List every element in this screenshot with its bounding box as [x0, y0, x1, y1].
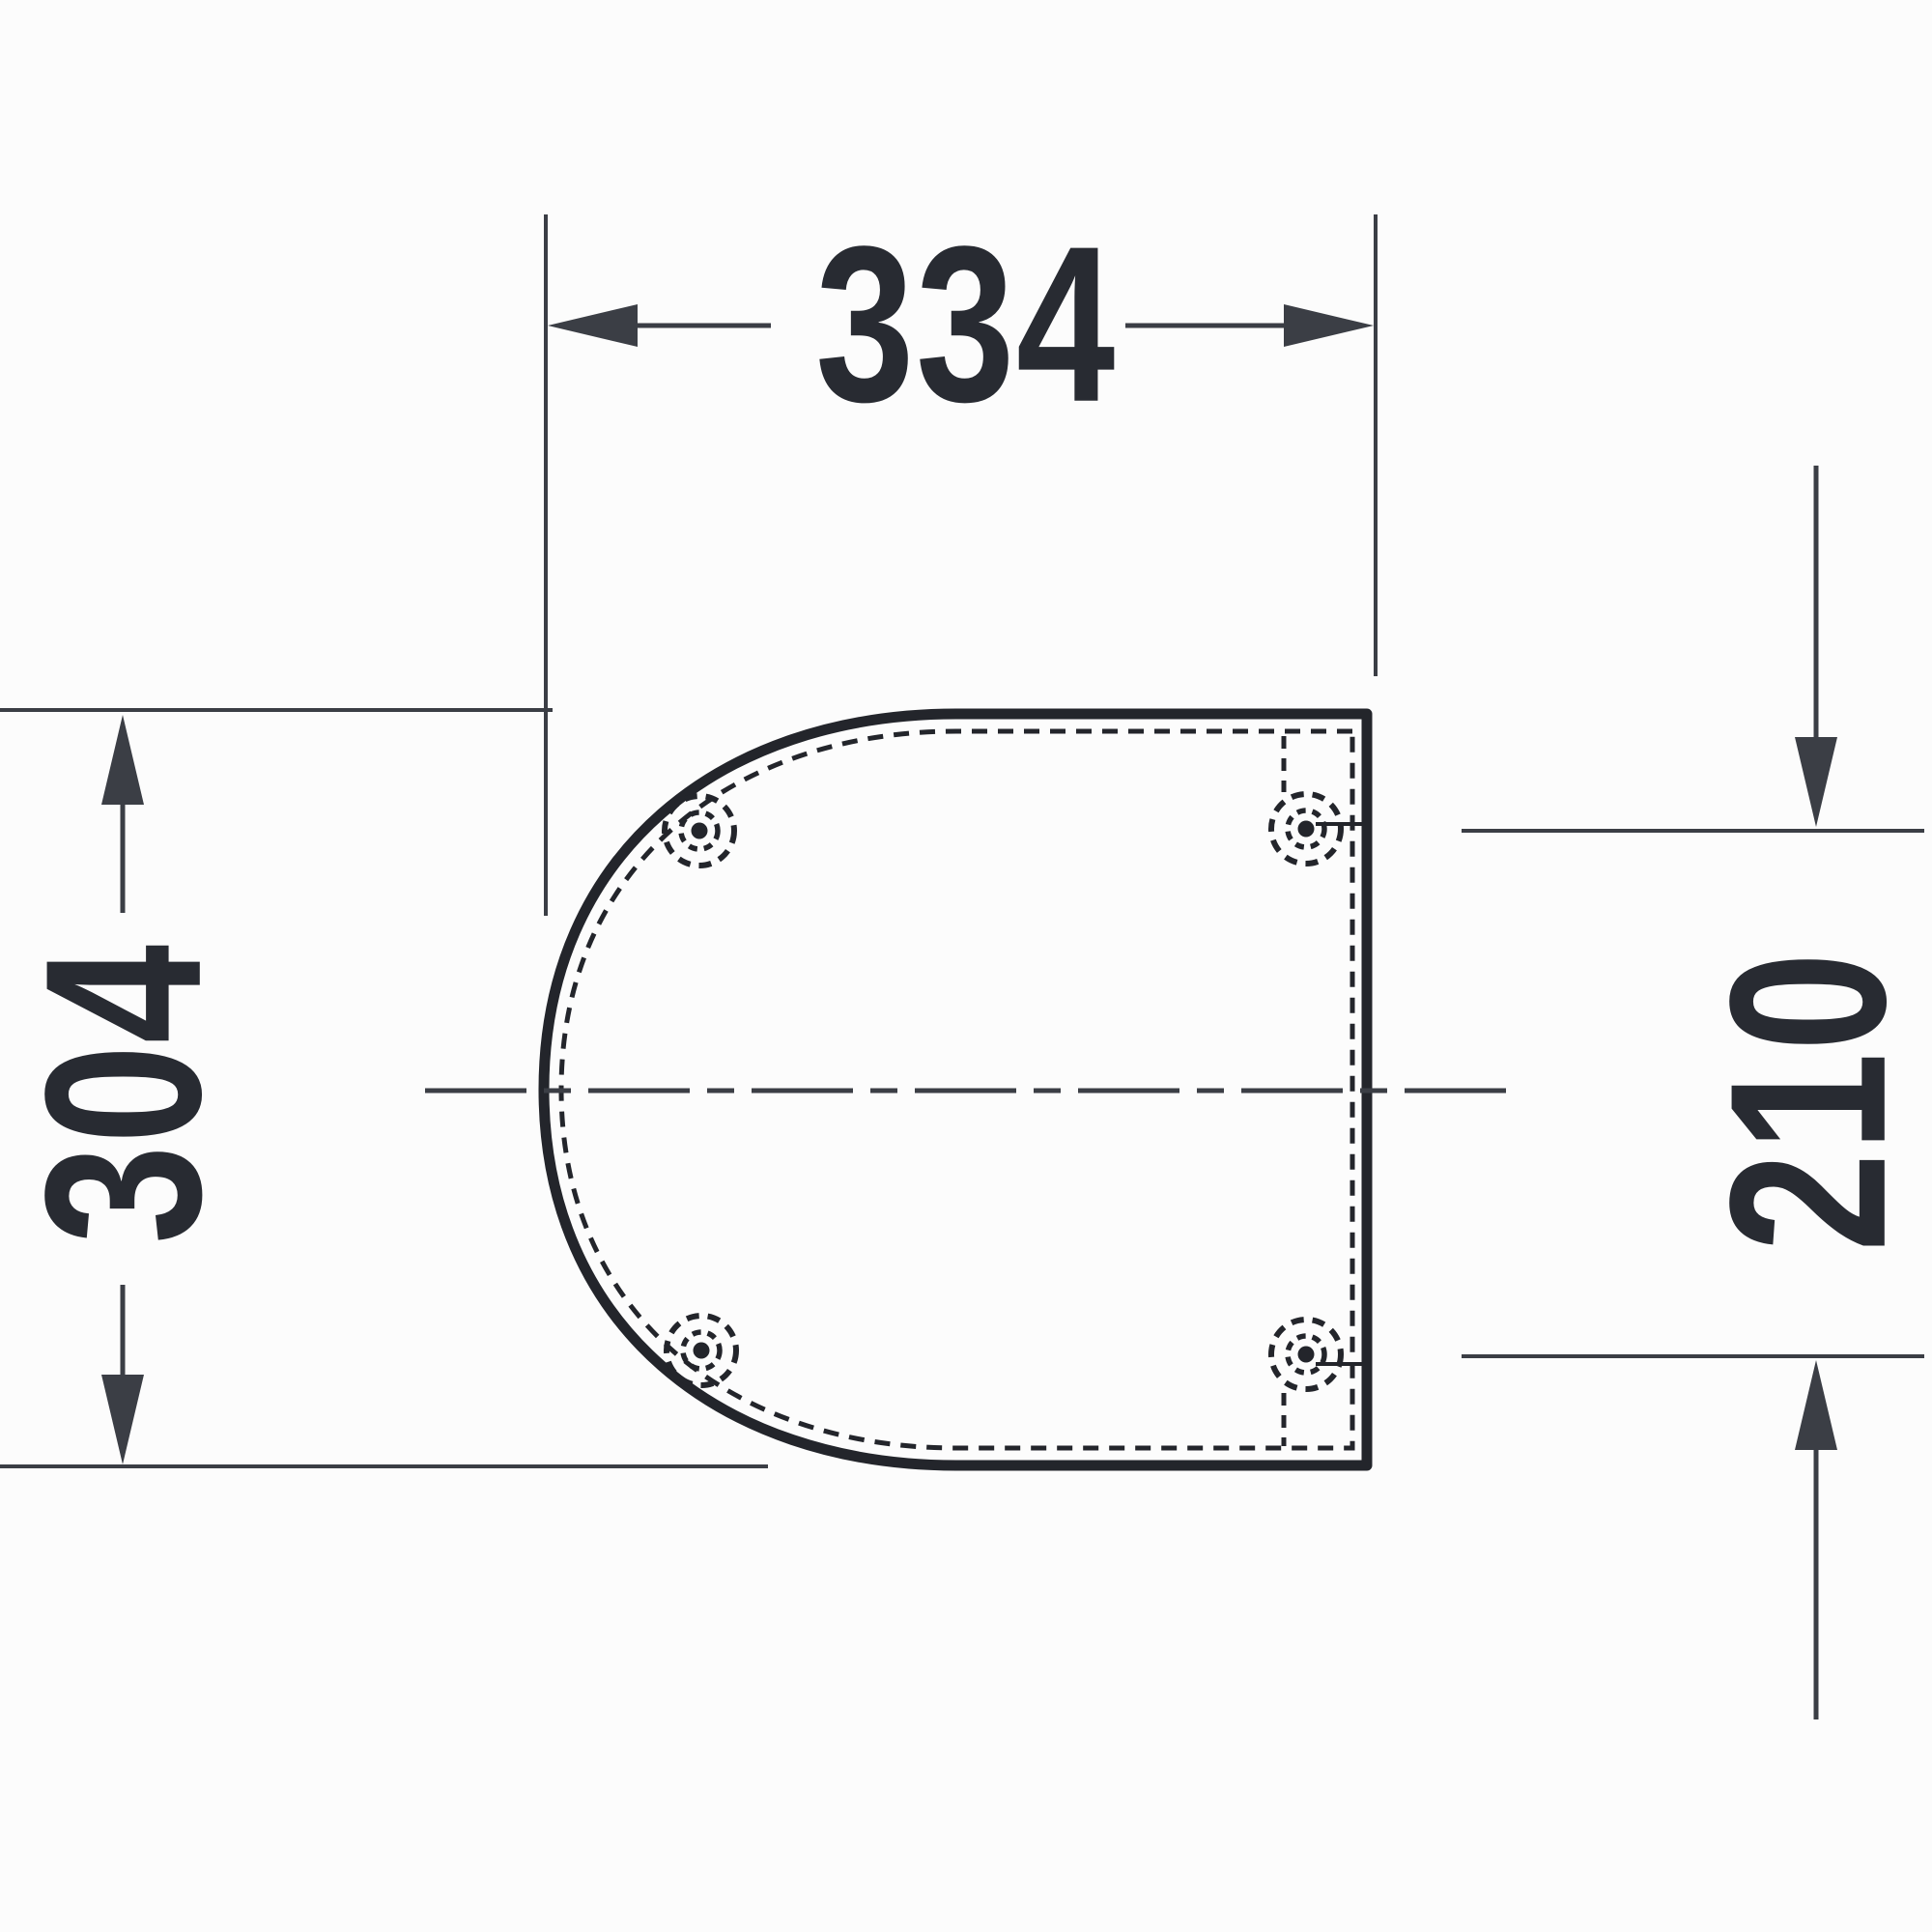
arrowhead-up: [101, 715, 144, 805]
arrowhead-left: [548, 304, 638, 347]
hole-center-dot: [694, 1343, 710, 1359]
hole-center-dot: [1298, 1347, 1315, 1363]
hole-center-dot: [1298, 821, 1315, 838]
drawing-canvas: 334 304 210: [0, 0, 1932, 1932]
dim-label-hinge-spacing: 210: [1684, 951, 1932, 1252]
arrowhead-down: [1795, 737, 1837, 827]
dimension-drawing: 334 304 210: [0, 0, 1932, 1932]
dim-label-height: 304: [0, 943, 247, 1244]
arrowhead-right: [1284, 304, 1374, 347]
dim-label-width: 334: [815, 200, 1117, 448]
arrowhead-down: [101, 1375, 144, 1464]
dimension-hinge-spacing: 210: [1462, 466, 1932, 1719]
hinge-hole-top-left: [665, 796, 734, 866]
arrowhead-up: [1795, 1360, 1837, 1450]
seat-shape: [425, 714, 1517, 1465]
hole-center-dot: [692, 823, 708, 839]
